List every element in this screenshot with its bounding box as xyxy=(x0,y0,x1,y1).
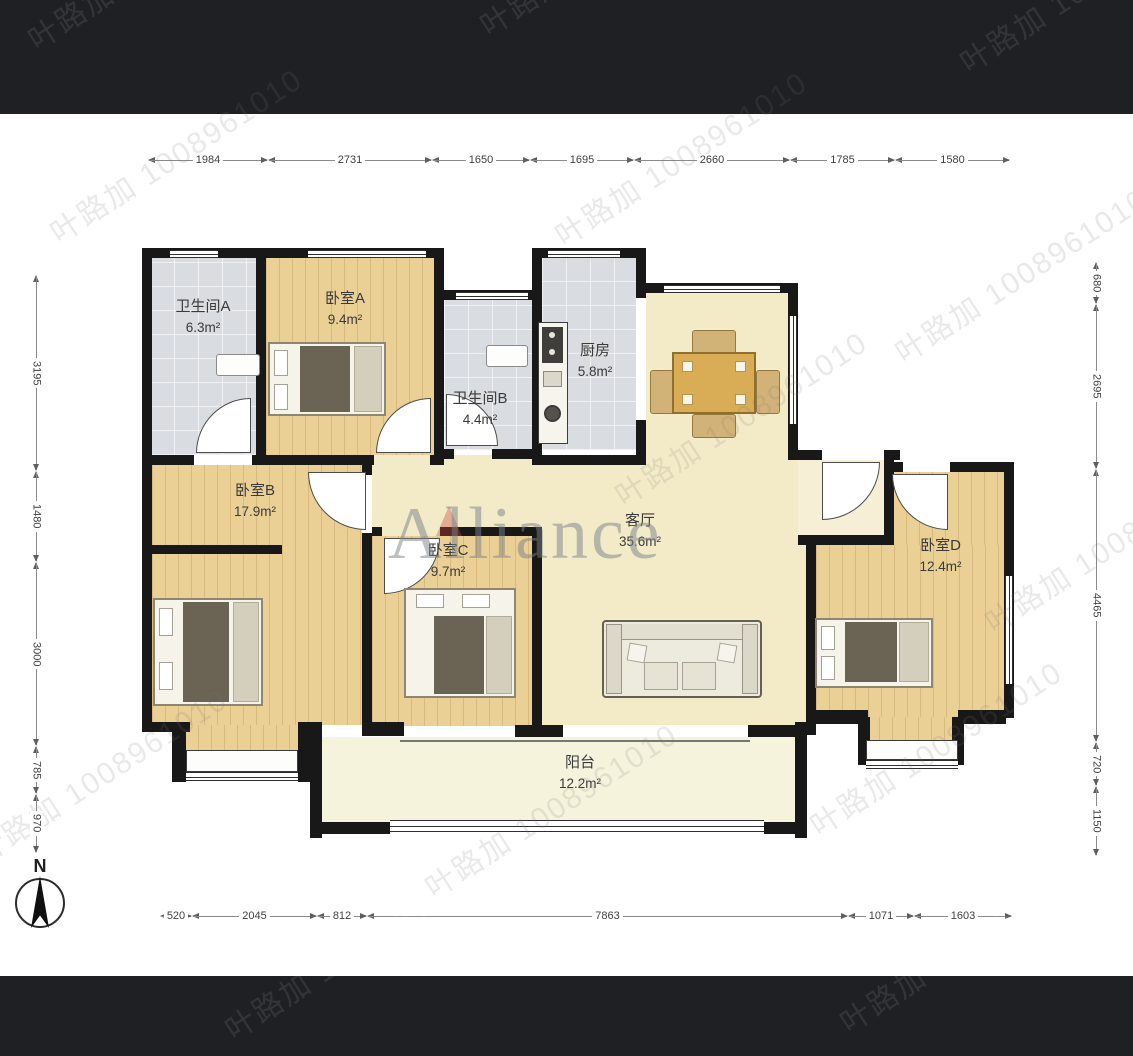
wall xyxy=(444,449,454,459)
sofa xyxy=(602,620,762,698)
wall xyxy=(142,455,194,465)
wall xyxy=(322,822,390,834)
dim-top-5: 1785 xyxy=(790,152,895,168)
dim-top-4: 2660 xyxy=(634,152,790,168)
dim-right-1: 2695 xyxy=(1088,304,1104,469)
room-name: 客厅 xyxy=(575,510,705,532)
north-needle-icon xyxy=(31,876,49,928)
window xyxy=(789,316,797,424)
bed-bedroom-b xyxy=(153,598,263,706)
dim-right-4: 1150 xyxy=(1088,786,1104,856)
room-name: 卫生间A xyxy=(148,296,258,318)
window xyxy=(170,250,218,258)
wall xyxy=(764,822,807,834)
top-letterbox-band xyxy=(0,0,1133,114)
bathroom-a-vanity xyxy=(216,354,260,376)
dim-bottom-3: 7863 xyxy=(367,908,848,924)
room-label-living-room: 客厅 35.6m² xyxy=(575,510,705,551)
room-name: 卧室C xyxy=(388,540,508,562)
balcony-window xyxy=(390,820,764,832)
dim-top-2: 1650 xyxy=(432,152,530,168)
dining-chair xyxy=(692,414,736,438)
dim-left-3: 785 xyxy=(28,746,44,794)
wall xyxy=(532,455,646,465)
room-area: 5.8m² xyxy=(545,362,645,382)
wall xyxy=(310,722,322,838)
room-area: 12.4m² xyxy=(878,557,1003,577)
room-name: 卫生间B xyxy=(425,388,535,410)
wall xyxy=(795,722,807,838)
room-area: 9.4m² xyxy=(285,310,405,330)
wall xyxy=(372,527,382,536)
wall xyxy=(788,450,822,460)
compass-circle-icon xyxy=(15,878,65,928)
dining-chair xyxy=(692,330,736,354)
wall xyxy=(362,533,372,733)
room-label-bedroom-b: 卧室B 17.9m² xyxy=(190,480,320,521)
dim-bottom-1: 2045 xyxy=(192,908,317,924)
dim-top-6: 1580 xyxy=(895,152,1010,168)
floorplan-screenshot: 卫生间A 6.3m² 卧室A 9.4m² 卫生间B 4.4m² 厨房 5.8m²… xyxy=(0,0,1133,1056)
dim-right-2: 4465 xyxy=(1088,469,1104,742)
dim-bottom-5: 1603 xyxy=(914,908,1012,924)
wall xyxy=(515,725,563,737)
sink-icon xyxy=(544,405,561,422)
room-area: 6.3m² xyxy=(148,318,258,338)
wall xyxy=(532,527,542,737)
room-name: 卧室D xyxy=(878,535,1003,557)
dim-left-4: 970 xyxy=(28,794,44,853)
wall xyxy=(172,732,186,782)
bottom-letterbox-band xyxy=(0,976,1133,1056)
bay-window-box xyxy=(186,750,298,772)
room-area: 4.4m² xyxy=(425,410,535,430)
dining-chair xyxy=(650,370,674,414)
room-name: 厨房 xyxy=(545,340,645,362)
balcony-sliding-door xyxy=(400,740,750,742)
room-label-bathroom-b: 卫生间B 4.4m² xyxy=(425,388,535,429)
window xyxy=(1005,576,1013,684)
bay-window xyxy=(866,760,958,769)
dim-left-0: 3195 xyxy=(28,275,44,471)
bed-bedroom-c xyxy=(404,588,516,698)
wall xyxy=(256,248,266,458)
dim-top-3: 1695 xyxy=(530,152,634,168)
room-area: 35.6m² xyxy=(575,532,705,552)
room-area: 12.2m² xyxy=(515,774,645,794)
bed-bedroom-a xyxy=(268,342,386,416)
window xyxy=(664,285,780,293)
room-label-balcony: 阳台 12.2m² xyxy=(515,752,645,793)
dim-right-0: 680 xyxy=(1088,262,1104,304)
window xyxy=(456,292,528,300)
dim-bottom-2: 812 xyxy=(317,908,367,924)
dim-left-1: 1480 xyxy=(28,471,44,562)
room-area: 17.9m² xyxy=(190,502,320,522)
bay-window xyxy=(186,772,298,781)
wall xyxy=(430,455,444,465)
wall xyxy=(893,462,903,472)
north-compass: N xyxy=(12,856,68,928)
dining-chair xyxy=(756,370,780,414)
wall xyxy=(958,710,1006,724)
dim-right-3: 720 xyxy=(1088,742,1104,786)
room-label-bedroom-c: 卧室C 9.7m² xyxy=(388,540,508,581)
bay-window-box xyxy=(866,740,958,760)
room-label-bedroom-a: 卧室A 9.4m² xyxy=(285,288,405,329)
wall xyxy=(748,725,798,737)
bed-bedroom-d xyxy=(815,618,933,688)
wall xyxy=(142,722,190,732)
room-name: 阳台 xyxy=(515,752,645,774)
wall xyxy=(252,455,374,465)
window xyxy=(548,250,620,258)
wall xyxy=(362,722,404,736)
window xyxy=(308,250,426,258)
wall xyxy=(150,545,282,554)
room-label-bedroom-d: 卧室D 12.4m² xyxy=(878,535,1003,576)
dim-bottom-0: 520 xyxy=(160,908,192,924)
dim-left-2: 3000 xyxy=(28,562,44,746)
room-label-kitchen: 厨房 5.8m² xyxy=(545,340,645,381)
room-name: 卧室B xyxy=(190,480,320,502)
dining-table xyxy=(672,352,756,414)
north-label: N xyxy=(12,856,68,877)
bathroom-b-vanity xyxy=(486,345,528,367)
dim-bottom-4: 1071 xyxy=(848,908,914,924)
room-name: 卧室A xyxy=(285,288,405,310)
room-area: 9.7m² xyxy=(388,562,508,582)
dim-top-1: 2731 xyxy=(268,152,432,168)
room-label-bathroom-a: 卫生间A 6.3m² xyxy=(148,296,258,337)
dim-top-0: 1984 xyxy=(148,152,268,168)
